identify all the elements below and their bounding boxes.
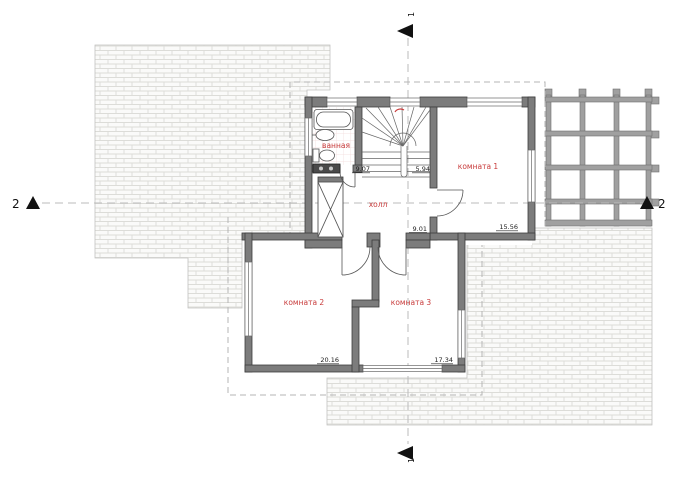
area-room1: 15.56 [499, 223, 518, 231]
room-label-room1: комната 1 [458, 162, 499, 171]
floor-plan-page: 2 2 1 1 [0, 0, 700, 480]
section-2-label-left: 2 [12, 197, 20, 211]
pergola-grid [545, 89, 659, 226]
divider-wall-jog [352, 300, 379, 307]
area-room3: 17.34 [434, 356, 453, 364]
section-arrow-left [26, 196, 40, 209]
room-label-bathroom: ванная [322, 141, 350, 150]
room-label-room3: комната 3 [391, 298, 432, 307]
bathtub [314, 110, 353, 130]
section-1-label-bottom: 1 [407, 458, 416, 463]
toilet [313, 149, 335, 162]
section-arrow-top [397, 24, 413, 38]
room-label-room2: комната 2 [284, 298, 325, 307]
room-label-hall: холл [369, 200, 388, 209]
area-hall: 9.01 [413, 225, 427, 233]
shaft-x-box [318, 182, 343, 237]
area-stairs: 5.94 [416, 165, 430, 173]
divider-wall-lower [352, 307, 359, 372]
floor-plan-drawing: 2 2 1 1 [0, 0, 700, 480]
section-2-label-right: 2 [658, 197, 666, 211]
area-room2: 20.16 [320, 356, 339, 364]
section-1-label-top: 1 [407, 12, 416, 17]
area-bathroom: 9.07 [356, 165, 370, 173]
section-arrow-bottom [397, 446, 413, 460]
washing-machine [313, 164, 340, 173]
